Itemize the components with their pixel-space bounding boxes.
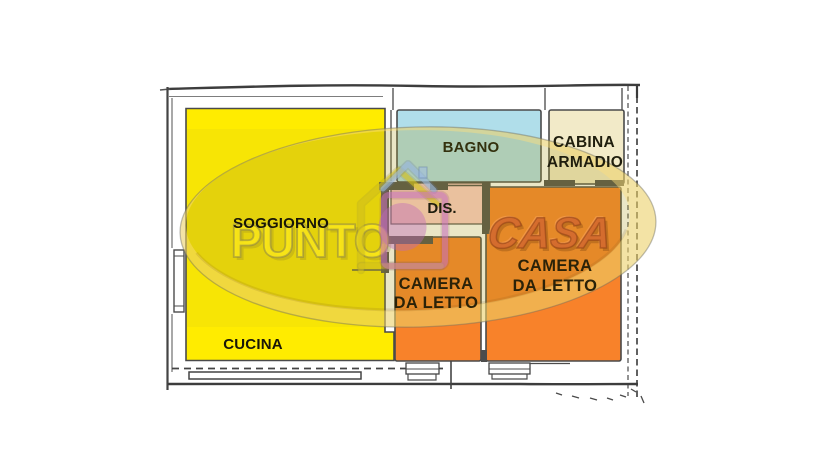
svg-text:CAMERA: CAMERA xyxy=(399,275,474,293)
svg-text:ARMADIO: ARMADIO xyxy=(547,154,623,171)
svg-text:CASA: CASA xyxy=(486,209,614,258)
svg-text:DIS.: DIS. xyxy=(427,200,456,217)
svg-text:SOGGIORNO: SOGGIORNO xyxy=(233,215,329,232)
svg-text:CUCINA: CUCINA xyxy=(223,336,283,353)
svg-text:BAGNO: BAGNO xyxy=(443,139,500,156)
svg-text:CABINA: CABINA xyxy=(553,134,615,151)
svg-text:CAMERA: CAMERA xyxy=(518,257,593,275)
svg-text:DA LETTO: DA LETTO xyxy=(394,294,479,312)
svg-text:DA LETTO: DA LETTO xyxy=(513,277,598,295)
